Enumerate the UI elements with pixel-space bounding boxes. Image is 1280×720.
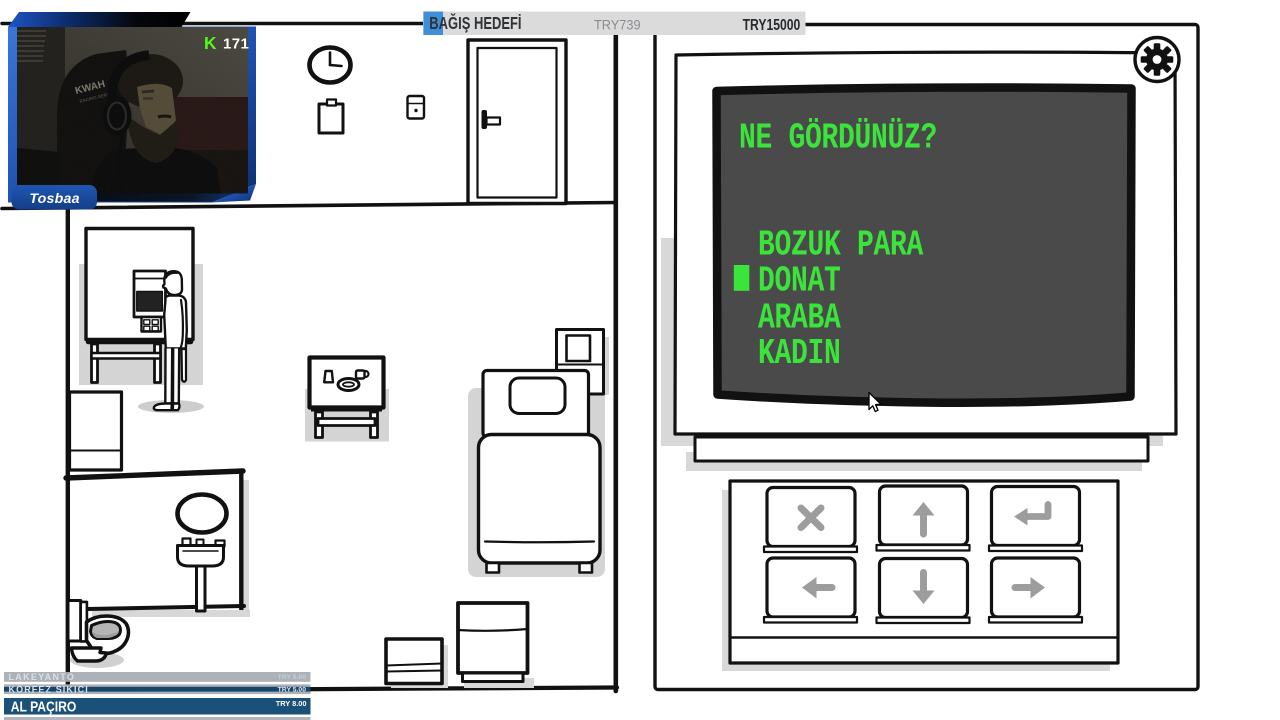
svg-text:AL PAÇIRO: AL PAÇIRO <box>11 698 76 714</box>
svg-text:TRY 8.00: TRY 8.00 <box>276 699 307 708</box>
svg-text:171: 171 <box>223 36 249 53</box>
svg-text:DONAT: DONAT <box>758 260 841 301</box>
svg-text:BAĞIŞ HEDEFİ: BAĞIŞ HEDEFİ <box>429 13 521 33</box>
svg-text:TRY15000: TRY15000 <box>743 16 801 34</box>
svg-text:KÖRFEZ SIKICI: KÖRFEZ SIKICI <box>9 685 89 695</box>
svg-text:K: K <box>204 33 217 53</box>
svg-text:NE GÖRDÜNÜZ?: NE GÖRDÜNÜZ? <box>739 116 937 159</box>
svg-text:Tosbaa: Tosbaa <box>29 191 79 207</box>
svg-text:TRY 5.00: TRY 5.00 <box>278 687 307 694</box>
svg-text:TRY739: TRY739 <box>594 17 641 33</box>
svg-text:TRY 5.00: TRY 5.00 <box>278 674 307 681</box>
svg-text:LAKEYANTO: LAKEYANTO <box>9 672 76 682</box>
svg-text:KADIN: KADIN <box>758 333 841 374</box>
